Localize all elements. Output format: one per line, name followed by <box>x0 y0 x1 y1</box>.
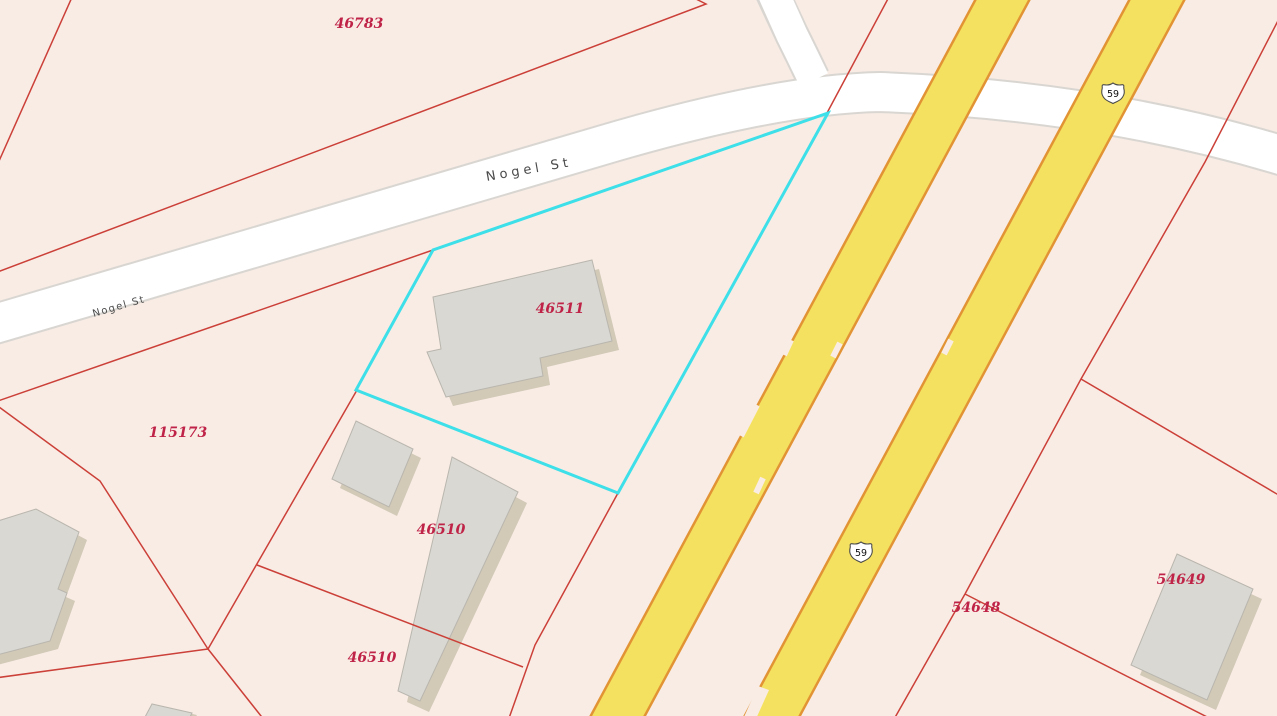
parcel-line <box>508 493 618 716</box>
route-number: 59 <box>855 548 867 559</box>
building-long <box>398 457 518 701</box>
parcel-line <box>208 649 265 716</box>
parcel-line <box>208 390 357 649</box>
us-route-59-shield-south: 59 <box>848 540 874 564</box>
map-canvas[interactable]: 46783 46511 115173 46510 46510 54648 546… <box>0 0 1277 716</box>
parcel-line <box>0 0 73 170</box>
map-graphics <box>0 0 1277 716</box>
road-north-branch <box>771 0 814 80</box>
parcel-line <box>1081 379 1277 497</box>
building-sliver <box>145 704 192 716</box>
route-number: 59 <box>1107 89 1119 100</box>
building-46511 <box>427 260 612 397</box>
us-route-59-shield-north: 59 <box>1100 81 1126 105</box>
parcel-line <box>893 594 965 716</box>
